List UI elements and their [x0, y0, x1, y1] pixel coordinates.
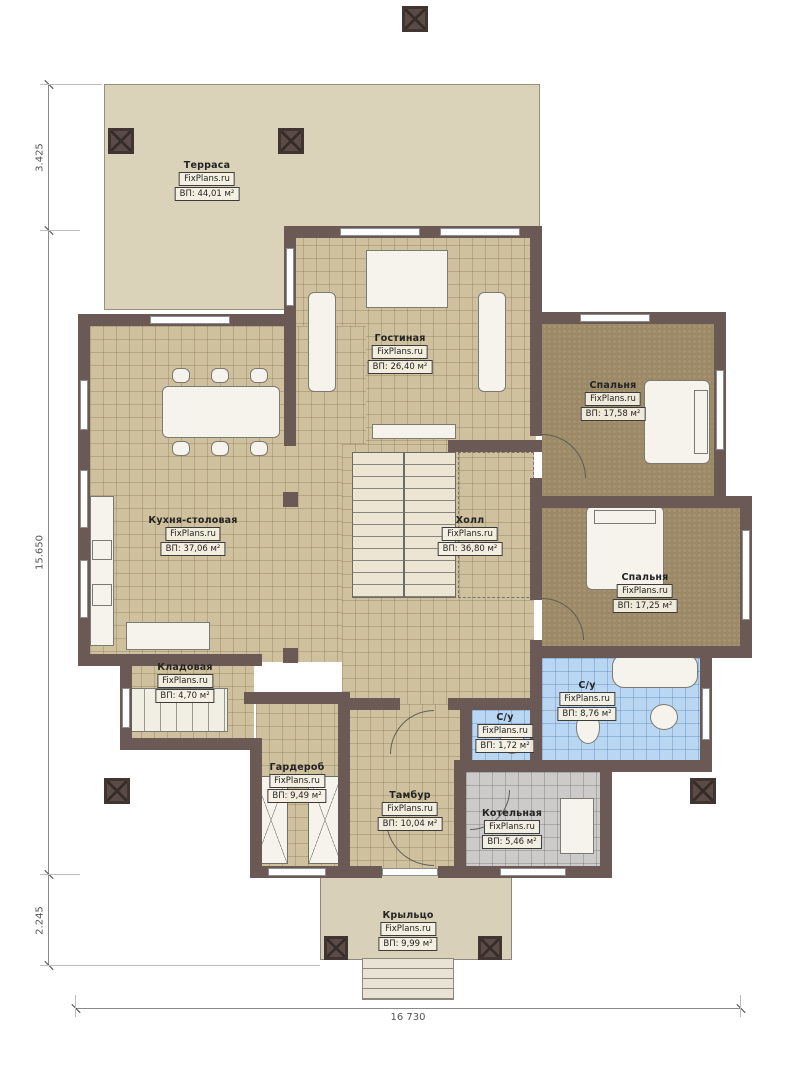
room-name: С/у — [557, 680, 616, 691]
dimension-line-vertical — [48, 84, 49, 966]
wall-segment — [338, 698, 350, 878]
room-area: ВП: 37,06 м² — [161, 542, 226, 556]
room-label-hall: Холл FixPlans.ru ВП: 36,80 м² — [438, 515, 503, 556]
window — [716, 370, 724, 450]
window — [80, 380, 88, 430]
wall-pillar — [283, 648, 298, 663]
watermark: FixPlans.ru — [559, 692, 615, 706]
room-name: Кухня-столовая — [148, 515, 237, 526]
wall-segment — [460, 760, 712, 772]
dimension-line-horizontal — [75, 1008, 741, 1009]
room-label-wardrobe: Гардероб FixPlans.ru ВП: 9,49 м² — [267, 762, 326, 803]
watermark: FixPlans.ru — [585, 392, 641, 406]
window — [500, 868, 566, 876]
window — [150, 316, 230, 324]
watermark: FixPlans.ru — [269, 774, 325, 788]
dining-table — [162, 386, 280, 438]
watermark: FixPlans.ru — [380, 922, 436, 936]
sink — [650, 704, 678, 730]
column — [108, 128, 134, 154]
room-label-living: Гостиная FixPlans.ru ВП: 26,40 м² — [368, 333, 433, 374]
dimension-label-top: 3.425 — [35, 128, 46, 188]
room-name: Кладовая — [155, 662, 214, 673]
chair — [172, 368, 190, 383]
room-label-vestibule: Тамбур FixPlans.ru ВП: 10,04 м² — [378, 790, 443, 831]
room-area: ВП: 36,80 м² — [438, 542, 503, 556]
dimension-label-bottom-left: 2.245 — [35, 891, 46, 951]
watermark: FixPlans.ru — [179, 172, 235, 186]
extension-line — [40, 84, 102, 85]
wall-segment — [538, 646, 752, 658]
room-name: Спальня — [613, 572, 678, 583]
bed-pillows — [594, 510, 656, 524]
kitchen-counter — [90, 496, 114, 646]
porch-steps — [362, 958, 454, 1000]
tv-unit — [366, 250, 448, 308]
wall-segment — [244, 692, 350, 704]
room-area: ВП: 5,46 м² — [482, 835, 541, 849]
room-label-terrace: Терраса FixPlans.ru ВП: 44,01 м² — [175, 160, 240, 201]
room-name: Гостиная — [368, 333, 433, 344]
watermark: FixPlans.ru — [477, 724, 533, 738]
room-label-boiler: Котельная FixPlans.ru ВП: 5,46 м² — [482, 808, 542, 849]
chair — [172, 441, 190, 456]
watermark: FixPlans.ru — [165, 527, 221, 541]
wall-segment — [120, 738, 262, 750]
room-label-bath2: С/у FixPlans.ru ВП: 1,72 м² — [475, 712, 534, 753]
room-name: Крыльцо — [378, 910, 437, 921]
extension-line — [740, 995, 741, 1017]
terrace-door — [286, 248, 294, 306]
room-name: Тамбур — [378, 790, 443, 801]
wall-segment — [448, 440, 542, 452]
wall-segment — [250, 738, 262, 878]
chair — [211, 441, 229, 456]
room-name: Гардероб — [267, 762, 326, 773]
stove — [92, 584, 112, 606]
room-area: ВП: 9,99 м² — [378, 937, 437, 951]
window — [440, 228, 520, 236]
column — [278, 128, 304, 154]
wall-segment — [448, 698, 542, 710]
column — [478, 936, 502, 960]
window — [80, 470, 88, 528]
room-area: ВП: 4,70 м² — [155, 689, 214, 703]
room-label-storage: Кладовая FixPlans.ru ВП: 4,70 м² — [155, 662, 214, 703]
room-area: ВП: 9,49 м² — [267, 789, 326, 803]
chair — [250, 441, 268, 456]
window — [80, 560, 88, 618]
room-area: ВП: 1,72 м² — [475, 739, 534, 753]
room-name: С/у — [475, 712, 534, 723]
extension-line — [75, 995, 76, 1017]
extension-line — [40, 965, 320, 966]
console-table — [372, 424, 456, 439]
dimension-label-middle: 15.650 — [35, 523, 46, 583]
wall-segment — [530, 226, 542, 324]
watermark: FixPlans.ru — [372, 345, 428, 359]
watermark: FixPlans.ru — [157, 674, 213, 688]
column — [690, 778, 716, 804]
sofa — [478, 292, 506, 392]
chair — [250, 368, 268, 383]
window — [702, 688, 710, 740]
column — [324, 936, 348, 960]
room-name: Терраса — [175, 160, 240, 171]
watermark: FixPlans.ru — [484, 820, 540, 834]
room-label-bath1: С/у FixPlans.ru ВП: 8,76 м² — [557, 680, 616, 721]
column — [402, 6, 428, 32]
boiler-unit — [560, 798, 594, 854]
room-area: ВП: 8,76 м² — [557, 707, 616, 721]
watermark: FixPlans.ru — [617, 584, 673, 598]
extension-line — [40, 230, 80, 231]
wall-segment — [530, 312, 542, 436]
window — [742, 530, 750, 620]
window — [580, 314, 650, 322]
wall-segment — [454, 760, 466, 878]
room-label-bedroom2: Спальня FixPlans.ru ВП: 17,25 м² — [613, 572, 678, 613]
entrance-door-opening — [382, 868, 438, 876]
room-area: ВП: 17,58 м² — [581, 407, 646, 421]
bathtub — [612, 654, 698, 688]
room-label-bedroom1: Спальня FixPlans.ru ВП: 17,58 м² — [581, 380, 646, 421]
room-area: ВП: 44,01 м² — [175, 187, 240, 201]
window — [340, 228, 420, 236]
dimension-label-width: 16 730 — [375, 1012, 441, 1023]
room-label-porch: Крыльцо FixPlans.ru ВП: 9,99 м² — [378, 910, 437, 951]
room-label-kitchen: Кухня-столовая FixPlans.ru ВП: 37,06 м² — [148, 515, 237, 556]
watermark: FixPlans.ru — [382, 802, 438, 816]
window — [268, 868, 326, 876]
sofa — [308, 292, 336, 392]
room-name: Спальня — [581, 380, 646, 391]
watermark: FixPlans.ru — [442, 527, 498, 541]
room-area: ВП: 26,40 м² — [368, 360, 433, 374]
chair — [211, 368, 229, 383]
wall-segment — [600, 770, 612, 878]
staircase-divider — [403, 452, 405, 598]
room-area: ВП: 17,25 м² — [613, 599, 678, 613]
wall-pillar — [283, 492, 298, 507]
room-name: Котельная — [482, 808, 542, 819]
column — [104, 778, 130, 804]
kitchen-counter — [126, 622, 210, 650]
room-name: Холл — [438, 515, 503, 526]
extension-line — [40, 874, 80, 875]
floor-plan: Терраса FixPlans.ru ВП: 44,01 м² Гостина… — [0, 0, 792, 1080]
room-area: ВП: 10,04 м² — [378, 817, 443, 831]
kitchen-sink — [92, 540, 112, 560]
wall-segment — [530, 496, 752, 508]
bed-pillows — [694, 390, 708, 454]
window — [122, 688, 130, 728]
